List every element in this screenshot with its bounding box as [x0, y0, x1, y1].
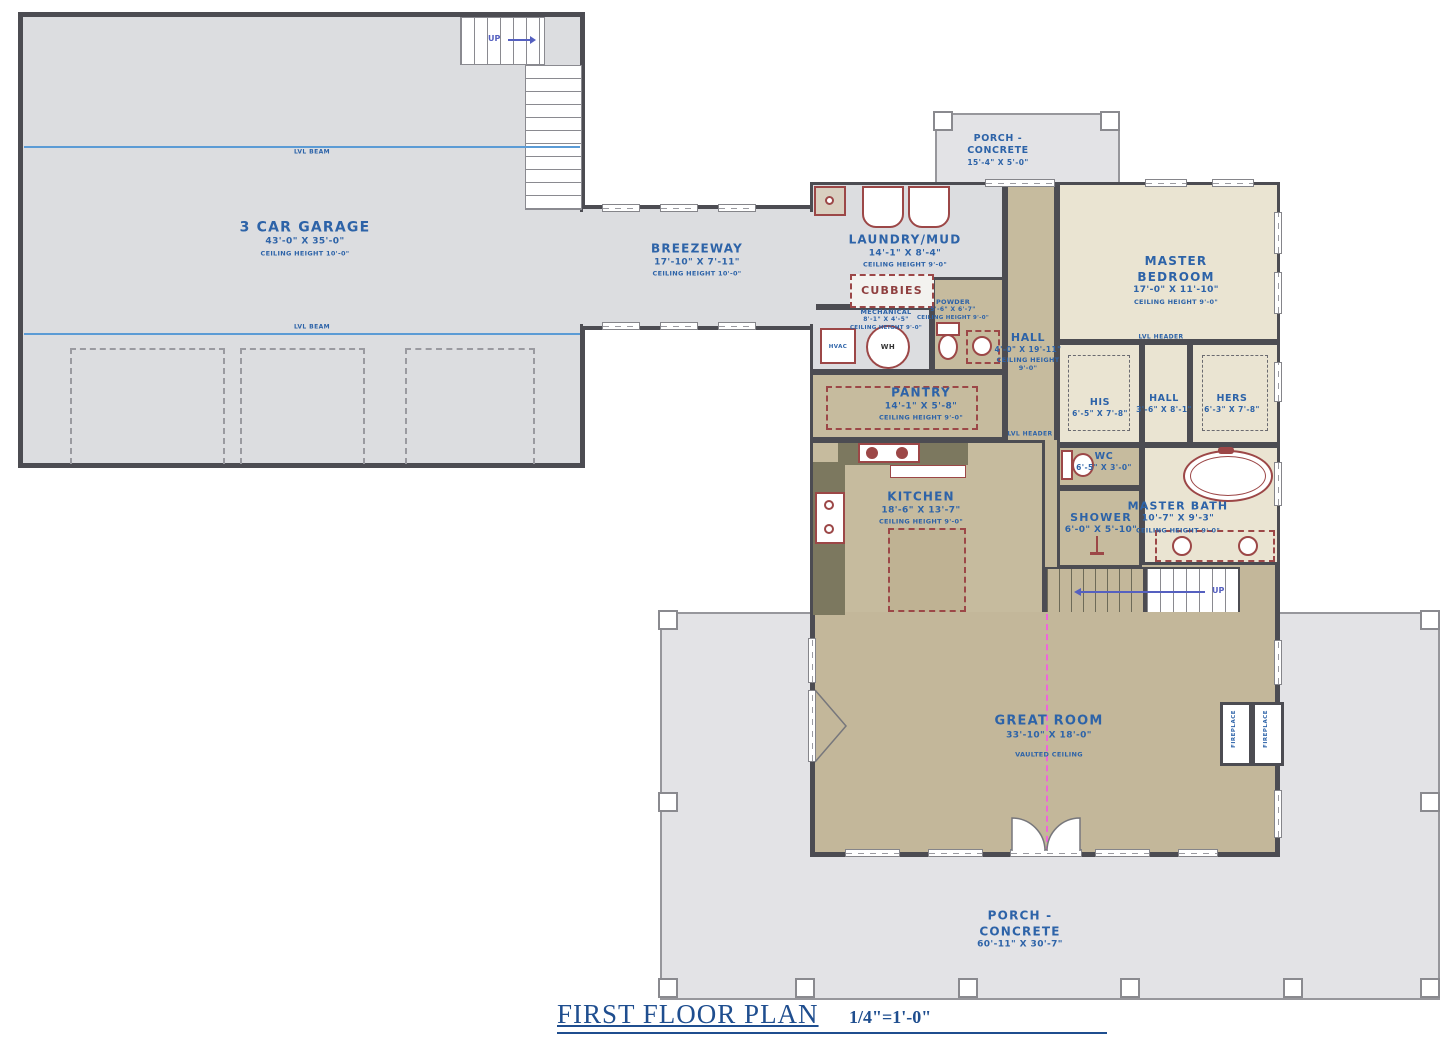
vanity-sink [1238, 536, 1258, 556]
window [808, 638, 816, 683]
porch-post [658, 610, 678, 630]
laundry-sink-drain [825, 196, 834, 205]
breezeway-opening [579, 212, 589, 324]
window [602, 204, 640, 212]
range-burner [896, 447, 908, 459]
window [1274, 362, 1282, 402]
french-door-swing [814, 688, 850, 764]
window [845, 849, 900, 857]
lvl-beam-line [24, 333, 580, 335]
room-label-mechanical: MECHANICAL 8'-1" X 4'-5" CEILING HEIGHT … [841, 308, 931, 332]
window [1274, 272, 1282, 314]
garage-door-bay [70, 348, 225, 464]
window [1095, 849, 1150, 857]
porch-post [933, 111, 953, 131]
range-burner [866, 447, 878, 459]
porch-post [1420, 792, 1440, 812]
sink-drain [824, 500, 834, 510]
up-label: UP [488, 34, 500, 43]
stairs-up-arrow-head [1074, 588, 1081, 596]
room-label-kitchen: KITCHEN 18'-6" X 13'-7" CEILING HEIGHT 9… [846, 490, 996, 527]
fireplace-label: FIREPLACE [1263, 710, 1269, 748]
dryer [908, 186, 950, 228]
lvl-beam-label: LVL BEAM [294, 149, 330, 156]
shower-head-bar [1090, 552, 1104, 555]
stairs-up-arrow [1080, 591, 1205, 593]
porch-door-opening [985, 179, 1055, 187]
up-arrow [508, 39, 530, 41]
fireplace-label: FIREPLACE [1231, 710, 1237, 748]
window [1274, 462, 1282, 506]
bathtub-inner [1190, 456, 1266, 496]
washer [862, 186, 904, 228]
floor-plan: UP LVL BEAM LVL BEAM UP FIREPLACE FIREP [0, 0, 1445, 1039]
room-label-cubbies: CUBBIES [847, 284, 937, 298]
room-label-laundry: LAUNDRY/MUD 14'-1" X 8'-4" CEILING HEIGH… [820, 233, 990, 270]
window [718, 322, 756, 330]
window [1212, 179, 1254, 187]
breezeway-opening [806, 212, 816, 324]
drawing-title: FIRST FLOOR PLAN [557, 999, 819, 1030]
porch-post [1420, 610, 1440, 630]
room-label-closet-hall: HALL 3'-6" X 8'-1" [1134, 393, 1194, 415]
window [1274, 212, 1282, 254]
window [718, 204, 756, 212]
lvl-beam-label: LVL BEAM [294, 324, 330, 331]
window [1274, 640, 1282, 685]
vanity-sink [1172, 536, 1192, 556]
room-label-master-bath: MASTER BATH 10'-7" X 9'-3" CEILING HEIGH… [1123, 499, 1233, 534]
toilet-bowl [938, 334, 958, 360]
up-label: UP [1212, 586, 1224, 595]
room-label-wc: WC 6'-5" X 3'-0" [1069, 451, 1139, 473]
porch-post [958, 978, 978, 998]
room-label-pantry: PANTRY 14'-1" X 5'-8" CEILING HEIGHT 9'-… [846, 386, 996, 423]
kitchen-island [888, 528, 966, 612]
porch-post [795, 978, 815, 998]
porch-post [1283, 978, 1303, 998]
hvac-label: HVAC [829, 344, 847, 350]
room-label-master-bedroom: MASTER BEDROOM 17'-0" X 11'-10" CEILING … [1111, 254, 1241, 306]
title-block: FIRST FLOOR PLAN 1/4"=1'-0" [557, 1002, 1107, 1034]
bathtub-faucet [1218, 447, 1234, 454]
window [660, 204, 698, 212]
room-label-porch-bottom: PORCH - CONCRETE 60'-11" X 30'-7" [960, 909, 1080, 952]
entry-door-swing [1010, 814, 1082, 852]
garage-door-bay [240, 348, 365, 464]
porch-post [1420, 978, 1440, 998]
water-heater-label: WH [881, 343, 895, 351]
window [928, 849, 983, 857]
room-label-his: HIS 6'-5" X 7'-8" [1060, 397, 1140, 419]
lvl-header-label: LVL HEADER [1007, 431, 1052, 438]
hall-room [1005, 182, 1057, 440]
porch-post [1120, 978, 1140, 998]
window [660, 322, 698, 330]
closet-shelf [1068, 355, 1130, 431]
room-label-garage: 3 CAR GARAGE 43'-0" X 35'-0" CEILING HEI… [185, 218, 425, 257]
sink-drain [824, 524, 834, 534]
window [1178, 849, 1218, 857]
room-label-porch-top: PORCH - CONCRETE 15'-4" X 5'-0" [951, 133, 1046, 167]
room-label-breezeway: BREEZEWAY 17'-10" X 7'-11" CEILING HEIGH… [617, 242, 777, 279]
room-label-great-room: GREAT ROOM 33'-10" X 18'-0" VAULTED CEIL… [939, 713, 1159, 758]
window [1274, 790, 1282, 838]
room-label-hers: HERS 6'-3" X 7'-8" [1192, 393, 1272, 415]
kitchen-shelf [890, 465, 966, 478]
lvl-header-label: LVL HEADER [1138, 334, 1183, 341]
drawing-scale: 1/4"=1'-0" [849, 1007, 931, 1028]
room-label-hall: HALL 4'-0" X 19'-11" CEILING HEIGHT 9'-0… [988, 331, 1068, 373]
porch-post [658, 978, 678, 998]
garage-stairs-side-run [525, 65, 582, 210]
garage-door-bay [405, 348, 535, 464]
window [1145, 179, 1187, 187]
window [602, 322, 640, 330]
porch-post [658, 792, 678, 812]
up-arrow-head [530, 36, 536, 44]
porch-post [1100, 111, 1120, 131]
